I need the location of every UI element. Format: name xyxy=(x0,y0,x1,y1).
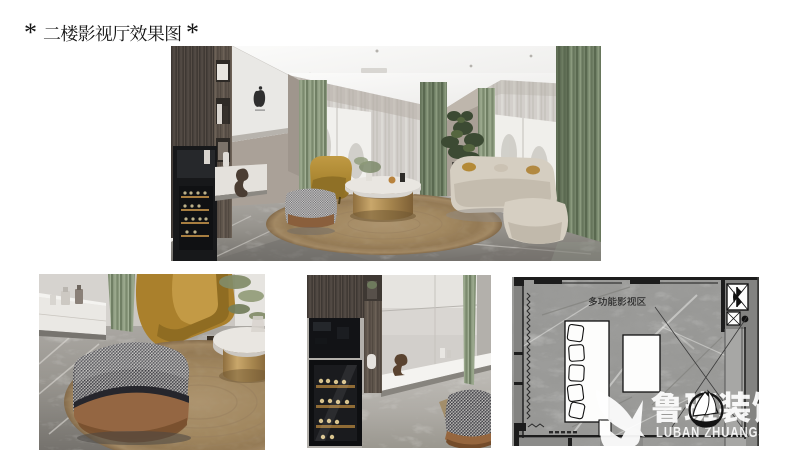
svg-text:*: * xyxy=(24,18,37,47)
svg-text:*: * xyxy=(186,18,199,47)
